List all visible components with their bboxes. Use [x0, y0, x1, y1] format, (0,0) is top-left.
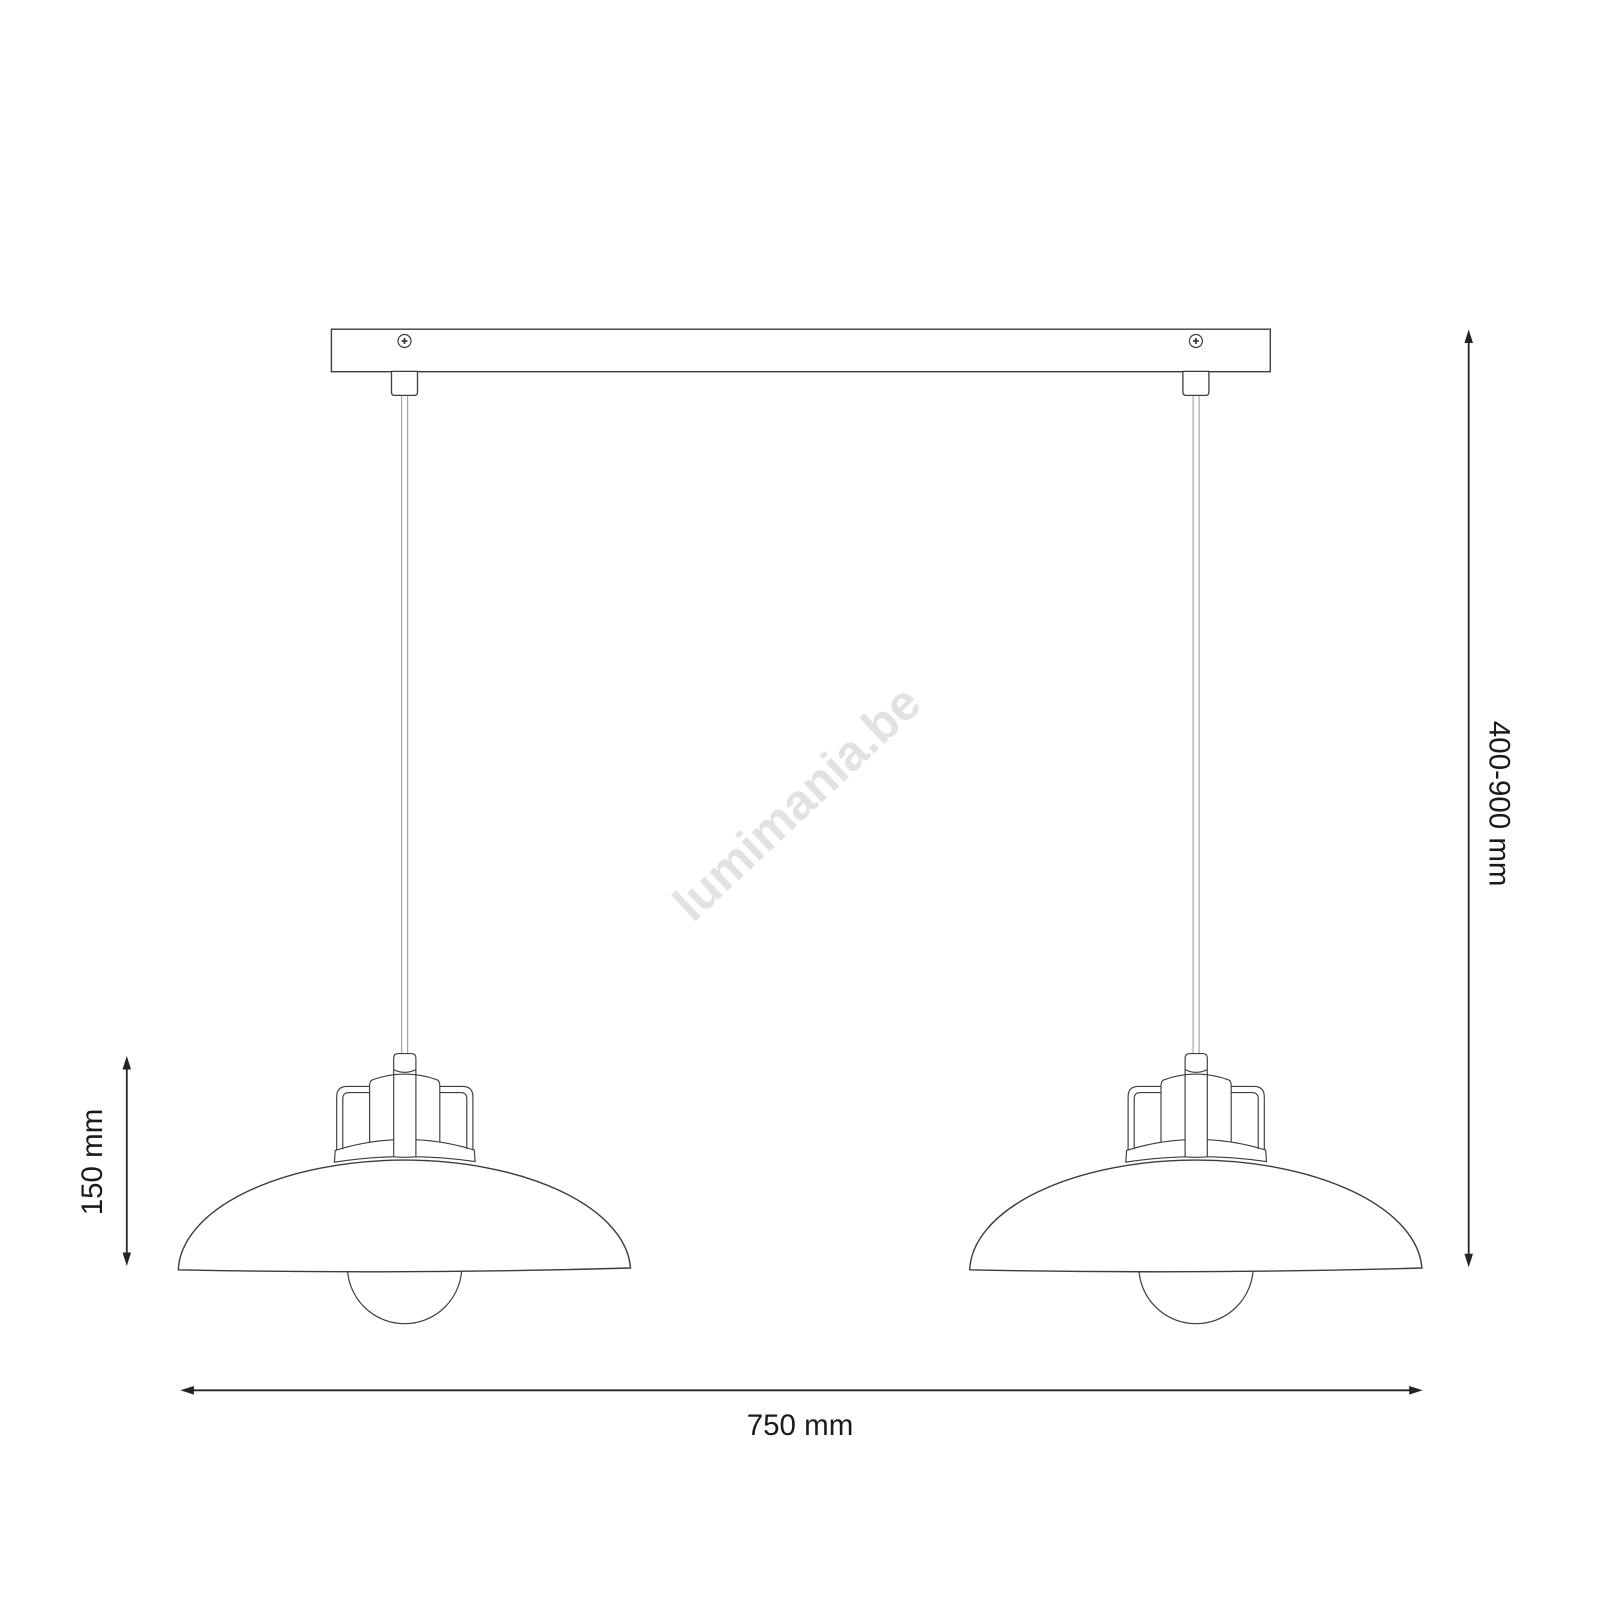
svg-text:150 mm: 150 mm: [76, 1109, 109, 1216]
svg-text:750 mm: 750 mm: [747, 1409, 854, 1442]
svg-text:400-900 mm: 400-900 mm: [1483, 721, 1516, 887]
